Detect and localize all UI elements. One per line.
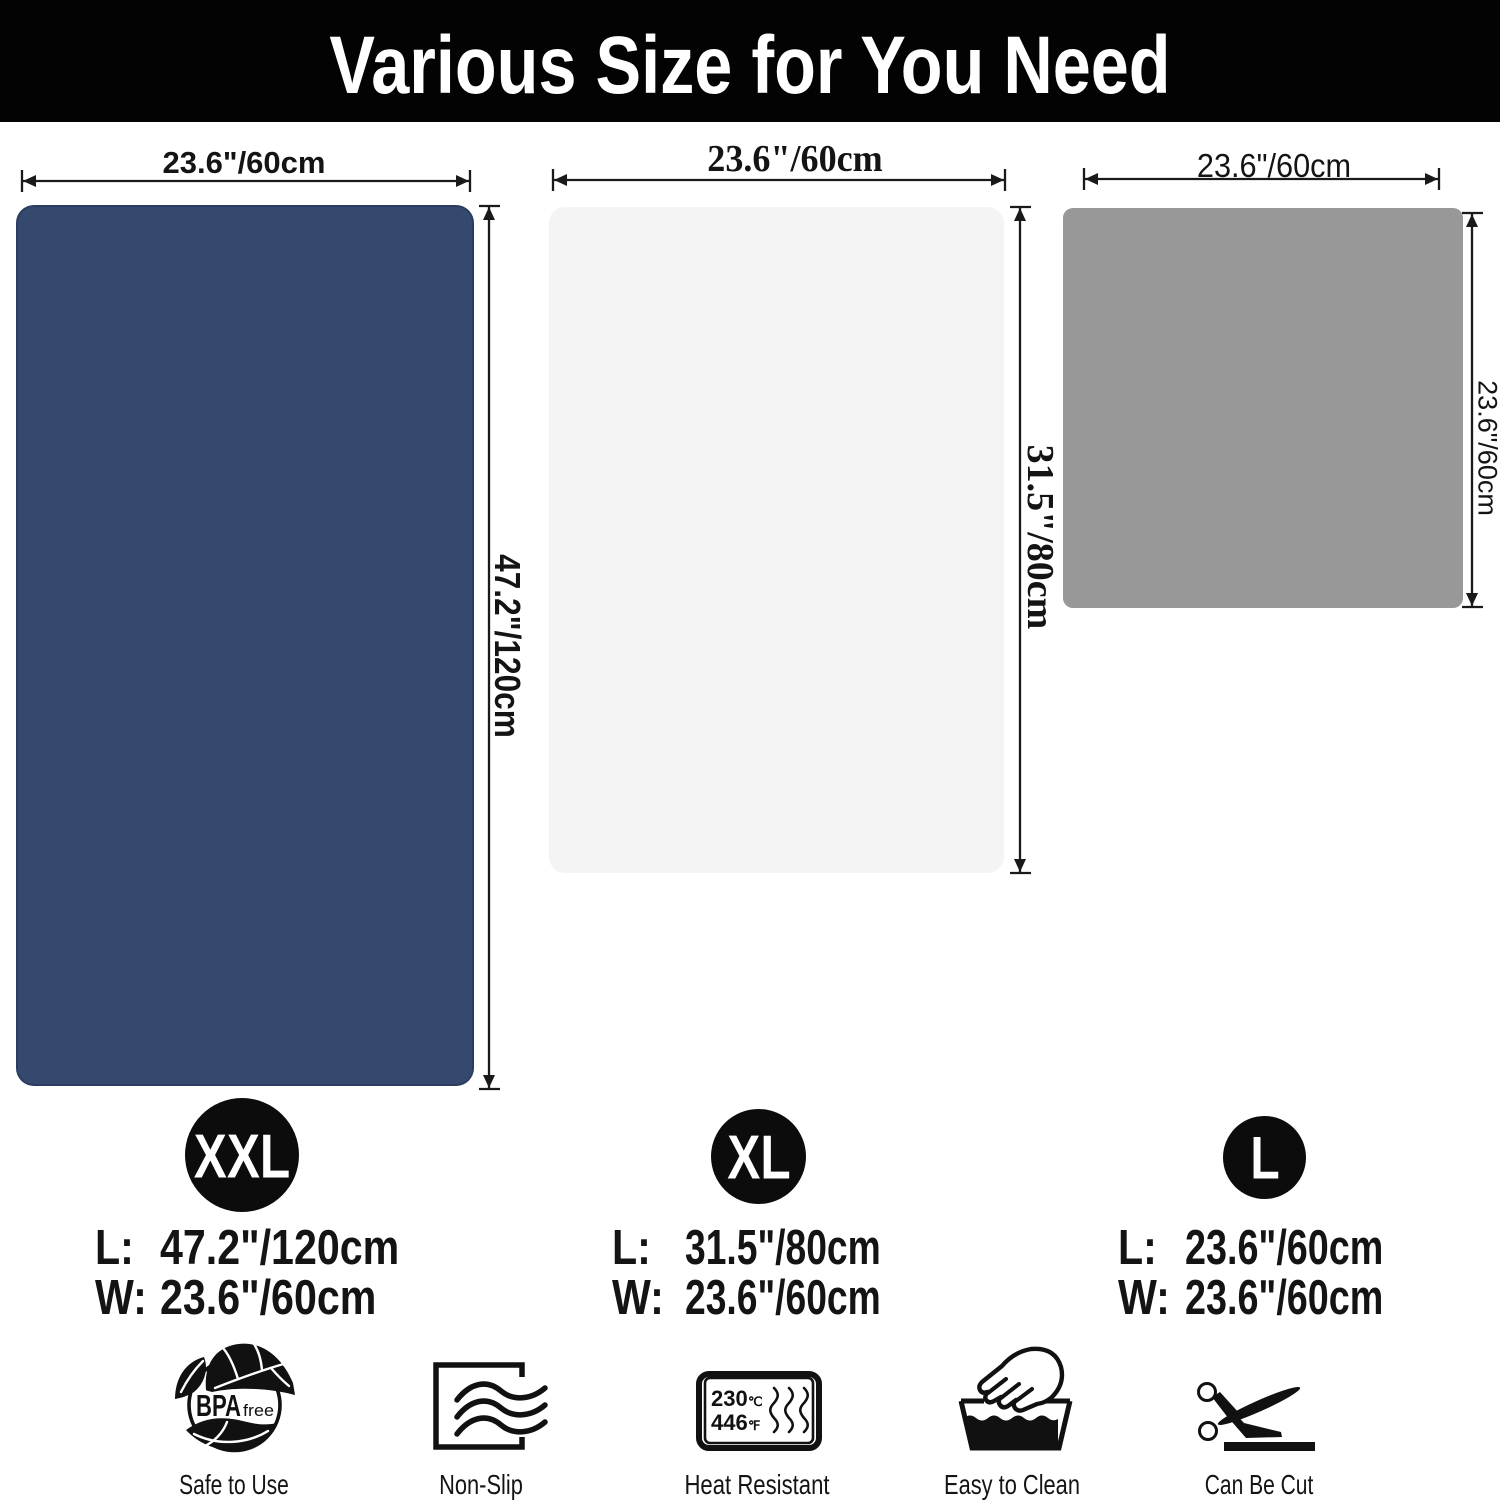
svg-text:℉: ℉ [748, 1418, 760, 1433]
svg-text:230: 230 [711, 1386, 748, 1411]
svg-text:free: free [243, 1401, 274, 1420]
svg-text:BPA: BPA [196, 1388, 241, 1423]
svg-text:℃: ℃ [748, 1394, 763, 1409]
svg-text:446: 446 [711, 1410, 748, 1435]
